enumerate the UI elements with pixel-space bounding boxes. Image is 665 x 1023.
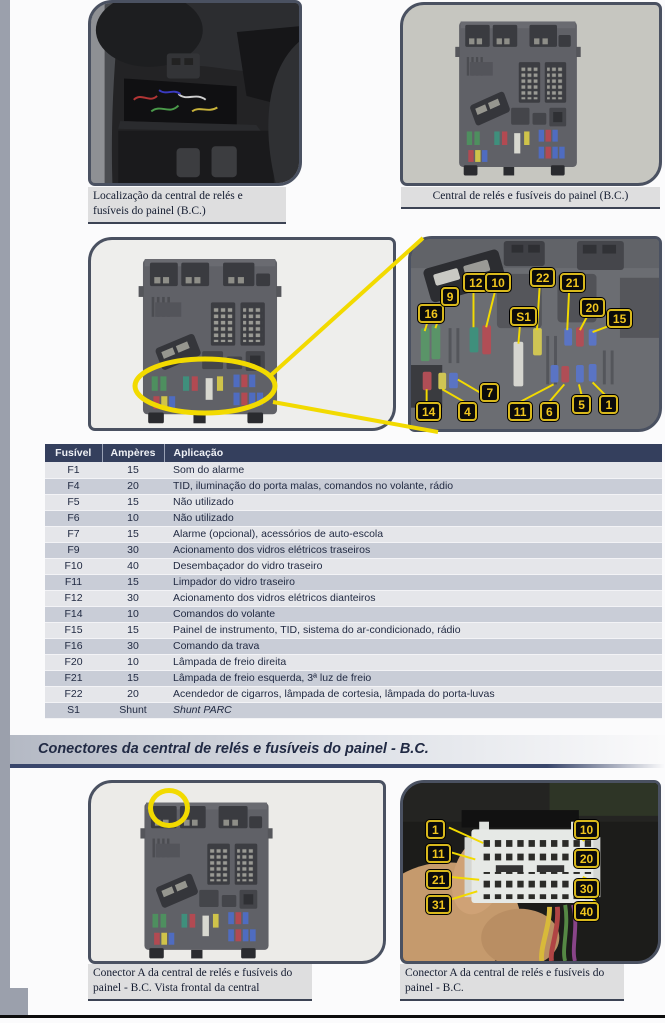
fuse-label-20: 20 — [574, 849, 599, 868]
fuse-label-11: 11 — [508, 402, 533, 421]
connector-a-circle-annotation — [148, 788, 190, 828]
fuse-table-row: F2010Lâmpada de freio direita — [45, 654, 662, 670]
fuse-table-row: F1115Limpador do vidro traseiro — [45, 574, 662, 590]
fuse-label-30: 30 — [574, 879, 599, 898]
fuse-label-5: 5 — [572, 395, 591, 414]
fuse-table-row: F1230Acionamento dos vidros elétricos di… — [45, 590, 662, 606]
fuse-table-row: F1040Desembaçador do vidro traseiro — [45, 558, 662, 574]
fuse-label-15: 15 — [607, 309, 632, 328]
photo-connector-a-pins: 111213110203040 — [400, 780, 661, 964]
fuse-label-14: 14 — [416, 402, 441, 421]
caption-connector-a-frontal: Conector A da central de relés e fusívei… — [88, 964, 312, 1001]
fuse-table-row: F2220Acendedor de cigarros, lâmpada de c… — [45, 686, 662, 702]
photo-fusebox-panel — [400, 2, 662, 186]
section-underline — [10, 764, 665, 768]
col-header-fusivel: Fusível — [45, 444, 102, 462]
photo-fuse-zoom: 1691210S122212015714411651 — [408, 236, 662, 432]
manual-page: Localização da central de relés e fusíve… — [0, 0, 665, 1023]
fuse-table-row: F2115Lâmpada de freio esquerda, 3ª luz d… — [45, 670, 662, 686]
fuse-label-16: 16 — [418, 304, 443, 323]
fuse-label-40: 40 — [574, 902, 599, 921]
fuse-label-S1: S1 — [510, 307, 537, 326]
photo-connector-a-frontal — [88, 780, 386, 964]
section-header: Conectores da central de relés e fusívei… — [10, 735, 665, 764]
fuse-label-1: 1 — [426, 820, 445, 839]
fuse-table-row: F420TID, iluminação do porta malas, coma… — [45, 478, 662, 494]
fuse-label-11: 11 — [426, 844, 451, 863]
col-header-aplicacao: Aplicação — [164, 444, 662, 462]
page-corner-block — [0, 988, 28, 1015]
section-title: Conectores da central de relés e fusívei… — [10, 735, 665, 764]
fuse-label-4: 4 — [458, 402, 477, 421]
page-bottom-rule — [0, 1015, 665, 1018]
caption-connector-a-pins: Conector A da central de relés e fusívei… — [400, 964, 624, 1001]
fuse-label-31: 31 — [426, 895, 451, 914]
fuse-label-1: 1 — [599, 395, 618, 414]
fuse-label-6: 6 — [540, 402, 559, 421]
fuse-table-row: F115Som do alarme — [45, 462, 662, 478]
fuse-label-9: 9 — [441, 287, 460, 306]
fuse-table-row: F1410Comandos do volante — [45, 606, 662, 622]
col-header-amperes: Ampères — [102, 444, 164, 462]
fuse-table: Fusível Ampères Aplicação F115Som do ala… — [45, 444, 662, 719]
fuse-label-7: 7 — [480, 383, 499, 402]
fuse-table-header-row: Fusível Ampères Aplicação — [45, 444, 662, 462]
fuse-label-21: 21 — [560, 273, 585, 292]
fuse-label-21: 21 — [426, 870, 451, 889]
fuse-label-10: 10 — [485, 273, 510, 292]
photo-fusebox-location — [88, 0, 302, 186]
fuse-table-row: F715Alarme (opcional), acessórios de aut… — [45, 526, 662, 542]
fuse-label-10: 10 — [574, 820, 599, 839]
page-left-margin-bar — [0, 0, 10, 1015]
car-interior-illustration — [91, 3, 299, 183]
fuse-table-row: F1630Comando da trava — [45, 638, 662, 654]
caption-fusebox-location: Localização da central de relés e fusíve… — [88, 187, 286, 224]
fuse-table-row: F930Acionamento dos vidros elétricos tra… — [45, 542, 662, 558]
photo-fusebox-highlighted — [88, 237, 396, 431]
fusebox-illustration — [453, 13, 583, 178]
fuse-label-20: 20 — [580, 298, 605, 317]
fuse-label-22: 22 — [530, 268, 555, 287]
fuse-table-row: F1515Painel de instrumento, TID, sistema… — [45, 622, 662, 638]
fuse-table-row: F610Não utilizado — [45, 510, 662, 526]
fuse-table-row: F515Não utilizado — [45, 494, 662, 510]
caption-fusebox-panel: Central de relés e fusíveis do painel (B… — [401, 187, 660, 209]
fusebox-illustration — [136, 250, 284, 426]
fuse-table-row: S1ShuntShunt PARC — [45, 702, 662, 718]
